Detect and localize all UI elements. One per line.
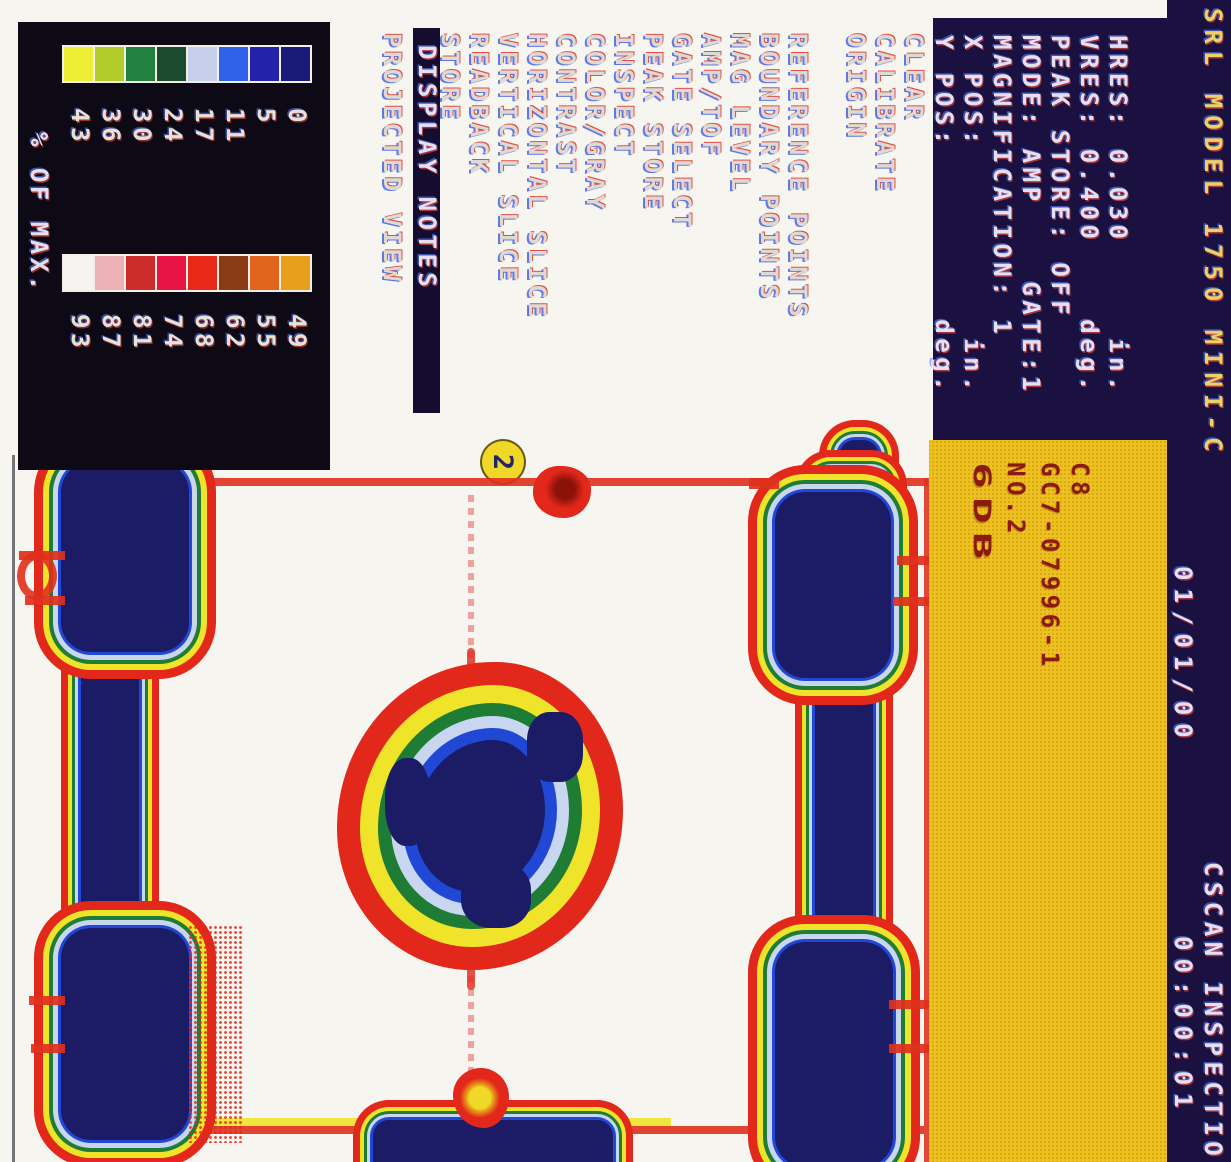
date-readout: 01/01/00 [1170,566,1196,746]
upper-band-blob-right [775,942,893,1162]
screen-title: CSCAN INSPECTIO [1200,862,1226,1161]
menu-item-peak-store[interactable]: PEAK STORE [640,33,666,213]
menu-item-clear[interactable]: CLEAR [901,33,927,123]
color-scale-panel: 05111724303643 4955626874818793 % OF MAX… [18,22,330,470]
menu-item-mag-level[interactable]: MAG LEVEL [727,33,753,195]
lower-band-speckle [187,925,243,1143]
color-scale-cell [126,256,155,290]
menu-item-reference-points[interactable]: REFERENCE POINTS [785,33,811,320]
color-scale-cell [250,256,279,290]
upper-tendril-2 [893,597,929,606]
color-scale-value: 0 [281,108,312,146]
upper-tendril-3 [889,1000,929,1009]
photo-edge-line [12,455,15,1162]
color-scale-cell [126,47,155,81]
color-scale-value: 68 [188,314,219,352]
mini-c-screen: 2 [0,0,1231,1162]
menu-item-calibrate[interactable]: CALIBRATE [872,33,898,195]
menu-item-color-gray[interactable]: COLOR/GRAY [582,33,608,213]
menu-item-vertical-slice[interactable]: VERTICAL SLICE [495,33,521,284]
color-scale-cell [157,47,186,81]
lower-tendril-loop [17,552,57,600]
color-scale-cell [95,47,124,81]
color-scale-value: 30 [126,108,157,146]
color-scale-value: 62 [219,314,250,352]
note-part-id: C8 [1067,462,1093,500]
color-scale-cell [64,256,93,290]
color-values-right: 4955626874818793 [64,314,312,352]
menu-item-origin[interactable]: ORIGIN [843,33,869,141]
note-db-level: 6DB [969,462,995,567]
menu-item-horizontal-slice[interactable]: HORIZONTAL SLICE [524,33,550,320]
color-scale-value: 36 [95,108,126,146]
center-trace-right [467,942,475,990]
menu-list: CLEAR CALIBRATE ORIGIN REFERENCE POINTS … [371,0,1231,460]
color-scale-cell [64,47,93,81]
right-edge-band [373,1120,613,1162]
lower-band-blob-left [61,462,189,652]
color-scale-value: 93 [64,314,95,352]
time-readout: 00:00:01 [1170,936,1196,1116]
color-scale-cell [219,47,248,81]
color-scale-value: 87 [95,314,126,352]
lower-tendril-4 [31,1044,65,1053]
menu-item-amp-tof[interactable]: AMP/TOF [698,33,724,159]
note-serial: GC7-07996-1 [1037,462,1063,670]
center-trace-left [467,648,475,693]
color-scale-cell [250,47,279,81]
color-scale-value: 49 [281,314,312,352]
menu-item-display-notes: DISPLAY NOTES [414,45,440,291]
color-scale-value: 74 [157,314,188,352]
menu-item-boundary-points[interactable]: BOUNDARY POINTS [756,33,782,302]
color-bar-right [62,254,312,292]
color-values-left: 05111724303643 [64,108,312,146]
scanned-photo: 2 [0,0,1231,1162]
color-scale-value: 81 [126,314,157,352]
color-scale-cell [188,256,217,290]
red-indication-dot [533,466,591,518]
central-defect-lobe-2 [461,862,531,928]
color-scale-cell [219,256,248,290]
central-defect-lobe-3 [385,758,431,846]
color-scale-value: 11 [219,108,250,146]
menu-item-inspect[interactable]: INSPECT [611,33,637,159]
color-scale-value: 5 [250,108,281,146]
note-number: NO.2 [1003,462,1029,538]
color-scale-value: 43 [64,108,95,146]
menu-item-display-notes-highlight[interactable]: DISPLAY NOTES [413,28,440,413]
lower-tendril-3 [29,996,65,1005]
color-scale-cell [281,47,310,81]
upper-tendril-1 [897,556,929,565]
menu-item-readback[interactable]: READBACK [466,33,492,177]
central-defect-lobe-1 [527,712,583,782]
menu-item-contrast[interactable]: CONTRAST [553,33,579,177]
notes-panel: C8 GC7-07996-1 NO.2 6DB [929,440,1167,1162]
lower-band-blob-right [61,928,189,1140]
menu-item-gate-select[interactable]: GATE SELECT [669,33,695,230]
color-scale-value: 55 [250,314,281,352]
upper-tendril-4 [889,1044,929,1053]
upper-band-stem [815,662,873,957]
menu-item-projected-view[interactable]: PROJECTED VIEW [379,33,405,284]
upper-band-blob-left [775,492,891,678]
color-scale-cell [95,256,124,290]
lower-band-stem [81,640,139,935]
upper-tendril-down [749,478,779,489]
color-scale-caption: % OF MAX. [26,132,52,294]
color-scale-value: 17 [188,108,219,146]
color-bar-left [62,45,312,83]
color-scale-cell [281,256,310,290]
color-scale-cell [157,256,186,290]
color-scale-value: 24 [157,108,188,146]
color-scale-cell [188,47,217,81]
